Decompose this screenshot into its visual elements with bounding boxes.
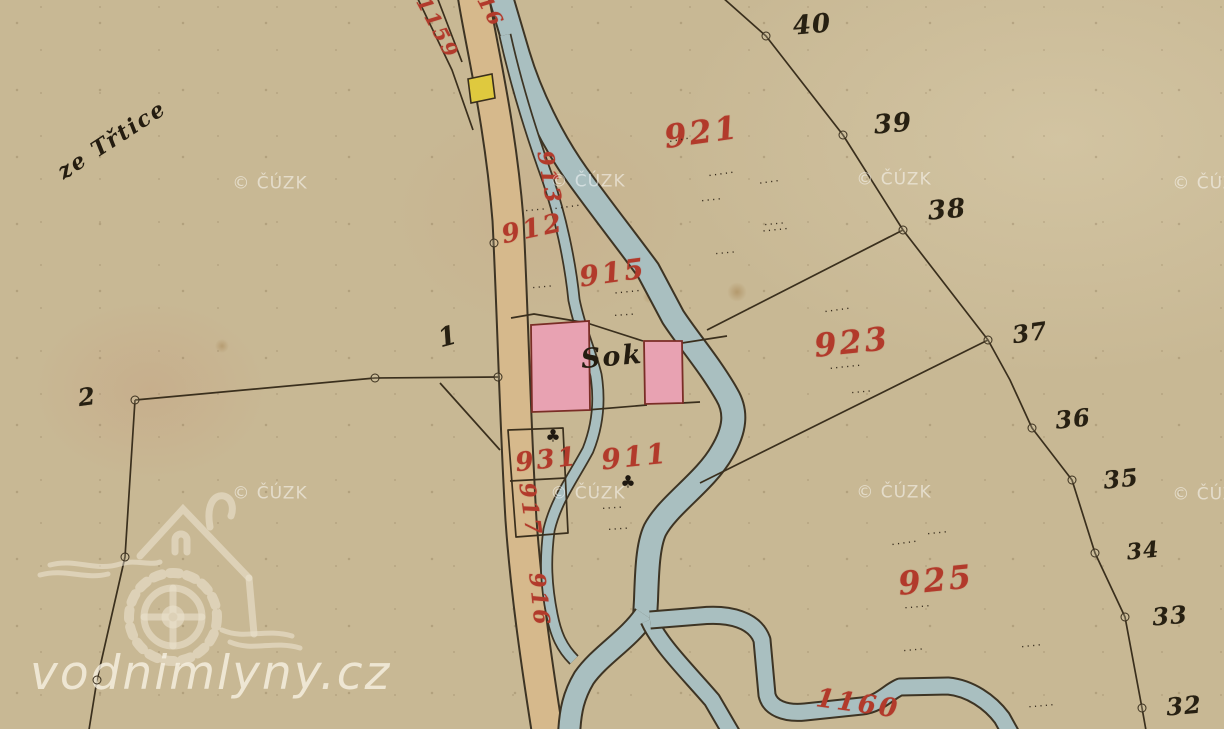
- field-dots: ····: [608, 523, 631, 536]
- survey-point: [762, 32, 771, 41]
- cuzk-watermark: © ČÚZK: [550, 174, 625, 191]
- red-parcel-number: 916: [525, 572, 553, 629]
- survey-point: [494, 373, 503, 382]
- field-dots: ····: [758, 175, 781, 189]
- black-boundary-number: 2: [77, 384, 98, 410]
- field-dots: ····: [1020, 639, 1043, 652]
- black-boundary-number: 35: [1102, 465, 1140, 493]
- survey-point: [1138, 704, 1147, 713]
- red-parcel-number: 916: [466, 0, 507, 31]
- annotation-layer: 1159916913912915921923931911917916925116…: [0, 0, 1224, 729]
- cuzk-watermark: © ČÚZK: [550, 486, 625, 503]
- field-dots: ·····: [614, 285, 642, 299]
- cuzk-watermark: © ČÚZK: [856, 172, 931, 189]
- field-dots: ····: [525, 204, 548, 217]
- survey-point: [984, 336, 993, 345]
- black-boundary-number: 33: [1151, 603, 1188, 630]
- field-dots: ·····: [904, 600, 932, 613]
- field-dots: ····: [926, 526, 949, 539]
- field-dots: ····: [532, 281, 555, 294]
- black-boundary-number: 36: [1054, 405, 1092, 433]
- survey-point: [1091, 549, 1100, 558]
- black-boundary-number: 39: [873, 109, 913, 138]
- cuzk-watermark: © ČÚZK: [1172, 487, 1224, 504]
- cuzk-watermark: © ČÚZK: [232, 176, 307, 193]
- black-boundary-number: 34: [1126, 538, 1161, 563]
- survey-point: [899, 226, 908, 235]
- field-dots: ·····: [824, 303, 853, 318]
- cadastral-map-scan[interactable]: vodnimlyny.cz 11599169139129159219239319…: [0, 0, 1224, 729]
- red-parcel-number: 911: [600, 440, 670, 475]
- black-boundary-number: 1: [435, 322, 460, 352]
- red-parcel-number: 1160: [814, 685, 901, 722]
- field-dots: ····: [851, 386, 874, 399]
- red-parcel-number: 1159: [413, 0, 462, 63]
- survey-point: [121, 553, 130, 562]
- field-dots: ·····: [891, 536, 920, 551]
- red-parcel-number: 931: [514, 444, 580, 476]
- red-parcel-number: 923: [813, 322, 892, 362]
- tree-symbol: ♣: [620, 475, 635, 492]
- field-dots: ····: [700, 193, 723, 206]
- field-dots: ····: [764, 218, 787, 231]
- black-boundary-number: 38: [927, 195, 967, 224]
- cuzk-watermark: © ČÚZK: [1172, 176, 1224, 193]
- cuzk-watermark: © ČÚZK: [856, 485, 931, 502]
- field-dots: ·····: [554, 200, 583, 215]
- survey-point: [371, 374, 380, 383]
- black-boundary-number: 32: [1165, 693, 1202, 720]
- house-label: Sok: [580, 341, 644, 373]
- field-dots: ····: [602, 502, 625, 515]
- field-dots: ····: [903, 644, 926, 657]
- field-dots: ······: [829, 360, 863, 374]
- red-parcel-number: 917: [515, 481, 544, 538]
- field-dots: ····: [715, 247, 738, 260]
- survey-point: [490, 239, 499, 248]
- field-dots: ·····: [1028, 699, 1056, 712]
- black-boundary-number: 40: [792, 10, 832, 39]
- survey-point: [93, 676, 102, 685]
- region-label: ze Třtice: [54, 97, 170, 183]
- field-dots: ····: [614, 309, 637, 322]
- red-parcel-number: 925: [897, 560, 976, 600]
- survey-point: [131, 396, 140, 405]
- field-dots: ····: [668, 133, 692, 148]
- survey-point: [1068, 476, 1077, 485]
- field-dots: ·····: [708, 167, 737, 182]
- survey-point: [1121, 613, 1130, 622]
- cuzk-watermark: © ČÚZK: [232, 486, 307, 503]
- survey-point: [839, 131, 848, 140]
- tree-symbol: ♣: [545, 429, 560, 446]
- black-boundary-number: 37: [1011, 319, 1049, 348]
- survey-point: [1028, 424, 1037, 433]
